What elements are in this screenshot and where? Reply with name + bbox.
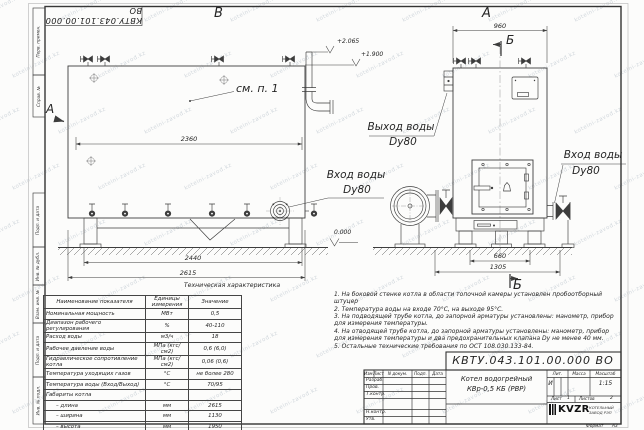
spec-cell: м3/ч [146, 332, 189, 343]
spec-table-title: Техническая характеристика [184, 283, 280, 289]
row-tkontr: Т.контр. [366, 393, 386, 398]
spec-cell: мм [146, 421, 189, 430]
spec-cell: МПа (кгс/см2) [146, 343, 189, 356]
spec-cell: Номинальная мощность [44, 309, 146, 320]
spec-cell: Диапазон рабочего регулирования [44, 319, 146, 332]
stamp-number: КВТУ.043.101.00.000 ВО [45, 6, 142, 26]
callout-see-note: см. п. 1 [236, 83, 279, 94]
dim-1305: 1305 [490, 264, 507, 271]
spec-cell: не более 280 [189, 369, 242, 380]
doc-number: КВТУ.043.101.00.000 ВО [452, 355, 613, 366]
section-a-label: А [46, 103, 54, 115]
door-latch-icon [504, 183, 511, 192]
dim-2360: 2360 [181, 136, 198, 143]
spec-row: Рабочее давление водыМПа (кгс/см2)0,6 (6… [44, 343, 242, 356]
spec-cell: 2615 [189, 400, 242, 411]
spec-row: Расход водым3/ч18 [44, 332, 242, 343]
note-item: 3. На подводящей трубе котла, до запорно… [334, 313, 620, 327]
spec-row: Температура уходящих газов°Сне более 280 [44, 369, 242, 380]
spec-table: Наименование показателя Единицы измерени… [43, 295, 242, 430]
spec-cell: 0,06 (0,6) [189, 356, 242, 369]
technical-notes: 1. На боковой стенке котла в области топ… [334, 291, 620, 350]
spec-cell: – ширина [44, 411, 146, 422]
sheet-value: 1 [567, 397, 570, 402]
control-panel [512, 77, 538, 99]
logo-bars-icon [549, 404, 556, 415]
spec-cell: – длина [44, 400, 146, 411]
dim-660: 660 [494, 253, 506, 260]
spec-cell: Наименование показателя [44, 296, 146, 309]
inlet-water-front-label: Вход воды [327, 170, 386, 181]
spec-cell: МПа (кгс/см2) [146, 356, 189, 369]
drawing-sheet: kotelni-zavod.kzkotelni-zavod.kzkotelni-… [0, 0, 644, 430]
view-label-side: А [482, 7, 491, 20]
spec-row: Номинальная мощностьМВт0,5 [44, 309, 242, 320]
note-item: 5. Остальные технические требования по О… [334, 343, 620, 350]
spec-row: Температура воды (Вход/Выход)°С70/95 [44, 379, 242, 390]
spec-cell: 0,6 (6,0) [189, 343, 242, 356]
spec-cell: °С [146, 369, 189, 380]
lit-value: И [548, 381, 553, 387]
spec-cell [146, 390, 189, 401]
dim-2440: 2440 [185, 255, 202, 262]
margin-cell: Подп. и дата [33, 193, 45, 247]
inlet-water-side-label: Вход воды [564, 150, 623, 161]
col-data: Дата [432, 372, 443, 376]
spec-row: – ширинамм1130 [44, 411, 242, 422]
spec-cell: мм [146, 400, 189, 411]
spec-cell: МВт [146, 309, 189, 320]
spec-cell: 1130 [189, 411, 242, 422]
spec-row: Гидравлическое сопротивление котлаМПа (к… [44, 356, 242, 369]
outlet-water-dn: Dу80 [389, 137, 417, 148]
side-inlet-valve [547, 196, 574, 248]
spec-cell: 70/95 [189, 379, 242, 390]
spec-row: – длинамм2615 [44, 400, 242, 411]
logo-text: KVZR [558, 404, 590, 415]
inlet-water-side-dn: Dу80 [572, 166, 600, 177]
margin-cell: Справ. № [33, 75, 45, 117]
margin-cell: Перв. примен. [33, 8, 45, 75]
spec-cell: 18 [189, 332, 242, 343]
spec-cell [189, 390, 242, 401]
spec-cell: Температура уходящих газов [44, 369, 146, 380]
mass-label: Масса [572, 372, 585, 376]
col-list: Лист [373, 372, 384, 376]
spec-row: Диапазон рабочего регулирования%40-110 [44, 319, 242, 332]
inlet-flange [266, 197, 294, 225]
fan-blower [391, 187, 453, 248]
product-name-line1: Котел водогрейный [461, 376, 532, 383]
row-nkontr: Н.контр. [366, 411, 386, 416]
spec-cell: °С [146, 379, 189, 390]
lit-label: Лит. [553, 372, 563, 376]
chimney-pipe [302, 52, 333, 114]
spec-cell: мм [146, 411, 189, 422]
spec-cell: Температура воды (Вход/Выход) [44, 379, 146, 390]
company-name: КОТЕЛЬНЫЙ ЗАВОД РЭП [589, 406, 614, 415]
elevation-top: +2.065 [337, 39, 359, 45]
format-label: Формат [586, 425, 603, 429]
view-label-front: В [214, 7, 223, 20]
col-podp: Подп. [414, 372, 427, 376]
sheets-label: Листов [579, 397, 595, 401]
spec-row: Габариты котла [44, 390, 242, 401]
spec-cell: Расход воды [44, 332, 146, 343]
note-item: 2. Температура воды на входе 70°С, на вы… [334, 306, 620, 313]
spec-cell: Рабочее давление воды [44, 343, 146, 356]
row-razrab: Разраб. [366, 379, 384, 384]
spec-row: – высотамм1950 [44, 421, 242, 430]
row-utv: Утв. [366, 418, 375, 423]
format-value: А3 [612, 425, 618, 429]
spec-cell: Единицы измерения [146, 296, 189, 309]
outlet-water-label: Выход воды [368, 122, 435, 133]
spec-header-row: Наименование показателя Единицы измерени… [44, 296, 242, 309]
note-item: 4. На отводящей трубе котла, до запорной… [334, 328, 620, 342]
spec-cell: – высота [44, 421, 146, 430]
inlet-water-front-dn: Dу80 [343, 185, 371, 196]
sheets-value: 2 [610, 397, 613, 402]
spec-cell: Габариты котла [44, 390, 146, 401]
furnace-door [472, 160, 533, 214]
elevation-zero: 0.000 [334, 230, 351, 236]
company-logo: KVZR [549, 404, 590, 415]
spec-cell: % [146, 319, 189, 332]
spec-cell: 40-110 [189, 319, 242, 332]
row-prov: Пров. [366, 386, 379, 391]
outlet-fitting [444, 71, 453, 91]
spec-cell: 0,5 [189, 309, 242, 320]
section-b-top-label: Б [506, 34, 514, 46]
spec-cell: Значение [189, 296, 242, 309]
note-item: 1. На боковой стенке котла в области топ… [334, 291, 620, 305]
scale-value: 1:15 [599, 381, 612, 387]
margin-cell: Инв. № дубл. [33, 247, 45, 285]
elevation-mid: +1.900 [361, 52, 383, 58]
dim-2615: 2615 [180, 270, 197, 277]
dim-960: 960 [494, 23, 506, 30]
spec-cell: Гидравлическое сопротивление котла [44, 356, 146, 369]
scale-label: Масштаб [596, 372, 616, 376]
product-name-line2: КВр-0,5 КБ (РВР) [467, 386, 526, 393]
col-doc: N докум. [388, 372, 407, 376]
spec-cell: 1950 [189, 421, 242, 430]
sheet-label: Лист [551, 397, 562, 401]
stamp-box: КВТУ.043.101.00.000 ВО [45, 6, 142, 25]
